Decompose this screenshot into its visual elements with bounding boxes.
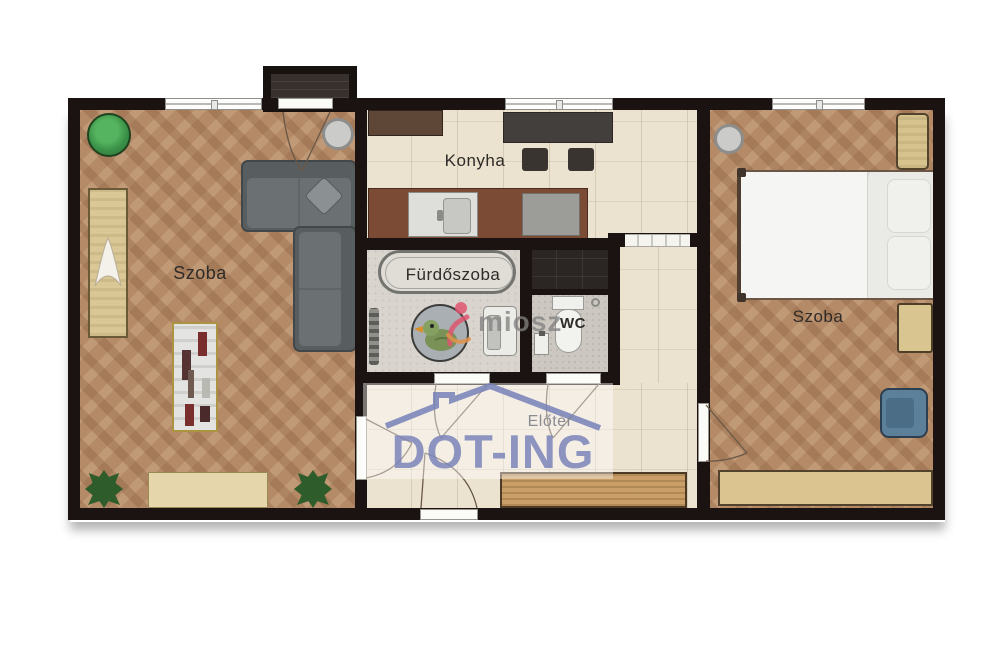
window-living: [165, 98, 262, 110]
balcony-door: [278, 98, 333, 109]
room-label-bedroom: Szoba: [778, 307, 858, 327]
chair: [522, 148, 548, 171]
window-tick: [211, 100, 218, 110]
potted-plant-small-right: [294, 470, 332, 508]
room-label-living: Szoba: [150, 263, 250, 284]
opening-kitchen-corridor: [625, 234, 690, 247]
potted-plant-large: [87, 113, 131, 157]
wall-closet-wc: [530, 289, 610, 295]
book: [198, 332, 207, 356]
potted-plant-small-left: [85, 470, 123, 508]
sink-faucet-icon: [437, 210, 443, 221]
sink-basin: [443, 198, 471, 234]
corner-sofa-vertical: [293, 226, 357, 352]
book: [188, 370, 194, 398]
wardrobe-bedroom: [718, 470, 933, 506]
armchair-blue: [880, 388, 928, 438]
floor-plan: Szoba Konyha Fürdőszoba WC Előtér Szoba …: [0, 0, 1000, 657]
armchair-seat: [886, 398, 914, 428]
bed-post: [737, 168, 746, 177]
wall-kitchen-bath: [355, 238, 620, 250]
doting-logo-text: DOT-ING: [368, 424, 618, 479]
wc-door-knob-icon: [591, 298, 600, 307]
closet-floor: [530, 246, 610, 295]
stove: [522, 193, 580, 236]
chair: [568, 148, 594, 171]
bed-pillow: [887, 236, 931, 290]
sideboard: [148, 472, 268, 508]
room-label-bathroom: Fürdőszoba: [392, 265, 514, 285]
shelf-top-right: [896, 113, 929, 170]
double-bed: [737, 170, 933, 300]
book: [200, 406, 210, 422]
door-bedroom: [698, 403, 709, 462]
wall-wc-corridor: [608, 238, 620, 385]
window-tick: [816, 100, 823, 110]
window-kitchen: [505, 98, 613, 110]
book: [185, 404, 194, 426]
bookshelf: [172, 322, 218, 432]
sofa-seat: [299, 232, 341, 346]
corridor-floor: [612, 240, 699, 390]
miosz-watermark-text: miosz: [478, 306, 562, 338]
window-bedroom: [772, 98, 865, 110]
floor-lamp-bedroom: [714, 124, 744, 154]
room-label-hall: Előtér: [512, 413, 588, 431]
window-tick: [556, 100, 563, 110]
dining-table: [503, 112, 613, 143]
room-label-kitchen: Konyha: [430, 151, 520, 171]
wall-unit: [88, 188, 128, 338]
book: [202, 378, 210, 398]
wall-right: [933, 98, 945, 520]
floor-lamp-living: [322, 118, 354, 150]
wall-left: [68, 98, 80, 520]
bed-pillow: [887, 179, 931, 233]
bed-post: [737, 293, 746, 302]
miosz-logo-icon: [441, 298, 481, 350]
wall-bottom: [68, 508, 945, 520]
kitchen-cabinet: [368, 110, 443, 136]
radiator: [369, 308, 379, 365]
ornament-icon: [90, 228, 126, 298]
nightstand: [897, 303, 933, 353]
door-entry: [420, 509, 478, 520]
sink: [408, 192, 478, 237]
